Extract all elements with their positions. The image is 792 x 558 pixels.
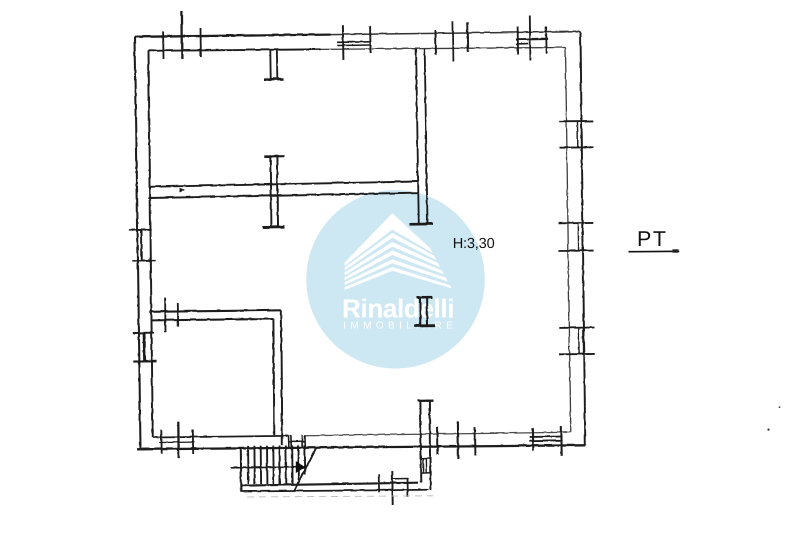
svg-text:H:3,30: H:3,30	[453, 236, 495, 252]
svg-text:Rinaldelli: Rinaldelli	[342, 294, 455, 324]
svg-text:PT: PT	[637, 227, 667, 251]
svg-text:IMMOBILIARE: IMMOBILIARE	[343, 321, 457, 332]
